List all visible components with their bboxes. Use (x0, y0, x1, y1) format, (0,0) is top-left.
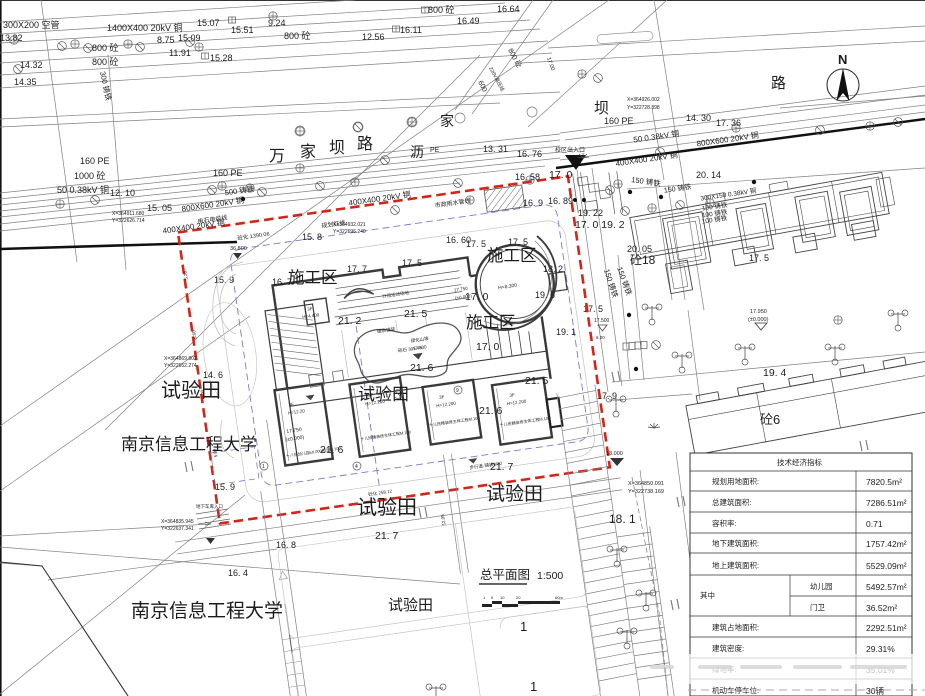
svg-text:17. 5: 17. 5 (402, 258, 422, 268)
svg-text:其中: 其中 (700, 590, 715, 600)
svg-text:15.51: 15.51 (231, 25, 254, 35)
svg-text:8.75: 8.75 (157, 35, 175, 45)
svg-text:家: 家 (440, 113, 454, 129)
svg-text:11.91: 11.91 (169, 48, 191, 58)
svg-text:17. 0: 17. 0 (476, 341, 500, 353)
svg-text:15.28: 15.28 (210, 53, 233, 63)
svg-text:建筑占地面积:: 建筑占地面积: (712, 622, 759, 632)
svg-text:1: 1 (262, 464, 265, 470)
svg-text:砼18: 砼18 (630, 253, 656, 267)
svg-text:1:500: 1:500 (537, 570, 563, 582)
svg-text:总平面图: 总平面图 (480, 568, 530, 582)
svg-text:3F: 3F (439, 394, 445, 400)
svg-text:地上建筑面积:: 地上建筑面积: (712, 560, 759, 570)
svg-text:16.64: 16.64 (497, 4, 520, 14)
svg-text:16.49: 16.49 (457, 16, 480, 26)
svg-text:15. 8: 15. 8 (302, 232, 322, 242)
svg-text:21. 7: 21. 7 (375, 530, 399, 542)
svg-text:路: 路 (357, 135, 373, 153)
svg-text:X=364932.021: X=364932.021 (333, 222, 366, 228)
svg-text:校区出入口: 校区出入口 (555, 146, 585, 154)
svg-text:X=364926.002: X=364926.002 (627, 97, 660, 103)
svg-text:13.82: 13.82 (0, 33, 23, 43)
svg-text:(±0.000): (±0.000) (748, 317, 769, 323)
svg-text:坝: 坝 (329, 139, 345, 157)
svg-text:19. 4: 19. 4 (763, 367, 787, 379)
svg-text:Y=322696.240: Y=322696.240 (333, 229, 366, 235)
svg-text:N: N (838, 52, 847, 67)
svg-text:20. 14: 20. 14 (696, 170, 721, 180)
svg-text:南京信息工程大学: 南京信息工程大学 (131, 600, 283, 622)
svg-text:X=364850.091: X=364850.091 (628, 481, 664, 487)
svg-text:地下建筑面积:: 地下建筑面积: (712, 538, 759, 548)
svg-text:21. 5: 21. 5 (404, 308, 428, 320)
svg-text:建筑密度:: 建筑密度: (712, 643, 744, 653)
svg-text:1: 1 (530, 679, 537, 694)
svg-text:18. 1: 18. 1 (609, 512, 636, 526)
svg-text:2292.51m²: 2292.51m² (866, 623, 907, 633)
svg-text:19. 22: 19. 22 (578, 208, 603, 218)
svg-text:14.35: 14.35 (14, 77, 37, 87)
svg-text:X=364835.945: X=364835.945 (161, 519, 194, 525)
svg-text:16. 8: 16. 8 (276, 540, 296, 550)
svg-text:160 PE: 160 PE (604, 116, 634, 126)
svg-text:1400X400 20kV 铜: 1400X400 20kV 铜 (107, 22, 183, 33)
svg-text:6.00: 6.00 (596, 335, 605, 340)
svg-text:18. 2: 18. 2 (543, 264, 563, 274)
svg-text:800 砼: 800 砼 (428, 4, 455, 15)
svg-text:15.07: 15.07 (197, 18, 220, 28)
svg-text:地下车库入口: 地下车库入口 (196, 503, 223, 510)
svg-text:3F: 3F (307, 306, 313, 312)
svg-text:14.32: 14.32 (20, 60, 43, 70)
svg-text:试验田: 试验田 (486, 483, 543, 505)
svg-text:坝: 坝 (594, 100, 609, 117)
svg-text:36.52m²: 36.52m² (866, 603, 897, 613)
svg-text:规划用地面积:: 规划用地面积: (712, 476, 759, 486)
svg-text:施工区: 施工区 (288, 268, 338, 287)
svg-text:容积率:: 容积率: (712, 518, 737, 528)
svg-text:9: 9 (456, 388, 459, 394)
svg-text:21. 6: 21. 6 (320, 444, 344, 456)
svg-text:1000 砼: 1000 砼 (74, 170, 106, 181)
svg-text:16. 9: 16. 9 (523, 198, 543, 208)
svg-text:17. 5: 17. 5 (749, 253, 769, 263)
svg-text:60m: 60m (555, 595, 563, 600)
svg-text:3F: 3F (288, 402, 294, 408)
svg-text:7820.5m²: 7820.5m² (866, 477, 902, 487)
svg-text:17. 0 19. 2: 17. 0 19. 2 (575, 219, 625, 231)
svg-text:36.800: 36.800 (230, 246, 247, 252)
svg-text:15. 05: 15. 05 (147, 203, 172, 213)
svg-text:800 砼: 800 砼 (92, 56, 119, 67)
svg-text:17.950: 17.950 (750, 309, 767, 315)
svg-text:17. 7: 17. 7 (347, 264, 367, 274)
svg-text:16. 89: 16. 89 (548, 196, 573, 206)
svg-text:14. 30: 14. 30 (686, 113, 711, 123)
svg-text:10: 10 (500, 595, 505, 600)
svg-text:试验田: 试验田 (358, 385, 409, 404)
svg-text:30辆: 30辆 (866, 686, 884, 696)
svg-text:门卫: 门卫 (810, 603, 825, 612)
svg-text:试验田: 试验田 (161, 379, 221, 402)
svg-text:16.11: 16.11 (400, 25, 422, 35)
svg-text:21. 6: 21. 6 (410, 362, 434, 374)
svg-text:13. 31: 13. 31 (483, 144, 508, 154)
svg-text:Y=322728.898: Y=322728.898 (627, 105, 660, 111)
svg-text:17. 0: 17. 0 (465, 291, 489, 303)
svg-text:Y=322626.714: Y=322626.714 (112, 218, 145, 224)
svg-text:12.56: 12.56 (362, 32, 385, 42)
svg-text:施工区: 施工区 (466, 313, 516, 332)
svg-text:0.71: 0.71 (866, 519, 883, 529)
svg-text:7286.51m²: 7286.51m² (866, 498, 907, 508)
svg-text:Y=322652.274: Y=322652.274 (164, 363, 197, 369)
svg-text:17. 0: 17. 0 (549, 169, 573, 181)
svg-text:总建筑面积:: 总建筑面积: (712, 497, 752, 507)
svg-text:17. 5: 17. 5 (508, 237, 528, 247)
svg-text:Y=322738.169: Y=322738.169 (628, 489, 664, 495)
svg-text:17. 5: 17. 5 (466, 239, 486, 249)
svg-text:1: 1 (520, 619, 527, 634)
svg-text:16. 4: 16. 4 (228, 568, 248, 578)
svg-text:160 PE: 160 PE (213, 168, 243, 178)
svg-text:试验田: 试验田 (388, 597, 433, 614)
svg-text:试验田: 试验田 (357, 496, 417, 519)
svg-text:300X200 空管: 300X200 空管 (3, 19, 60, 30)
svg-text:18.000: 18.000 (606, 451, 623, 457)
svg-text:800 砼: 800 砼 (284, 30, 311, 41)
svg-text:50 0.38kV 铜: 50 0.38kV 铜 (57, 184, 109, 195)
svg-text:家: 家 (300, 143, 316, 161)
svg-text:砼6: 砼6 (760, 412, 780, 427)
svg-text:5492.57m²: 5492.57m² (866, 582, 907, 592)
svg-text:1757.42m²: 1757.42m² (866, 539, 907, 549)
svg-text:沥: 沥 (410, 144, 424, 160)
svg-text:技术经济指标: 技术经济指标 (777, 457, 822, 467)
svg-text:PE: PE (430, 147, 440, 154)
svg-text:21. 7: 21. 7 (490, 461, 514, 473)
svg-text:12. 10: 12. 10 (110, 188, 135, 198)
svg-text:20: 20 (516, 595, 521, 600)
svg-text:29.31%: 29.31% (866, 644, 895, 654)
svg-text:Y=322637.341: Y=322637.341 (161, 526, 194, 532)
svg-text:21. 5: 21. 5 (525, 375, 549, 387)
svg-text:14. 6: 14. 6 (203, 370, 223, 380)
svg-text:800 砼: 800 砼 (92, 42, 119, 53)
svg-text:17. 36: 17. 36 (716, 118, 741, 128)
svg-text:3F: 3F (509, 392, 515, 398)
svg-text:17.500: 17.500 (594, 318, 610, 324)
svg-text:X=364911.680: X=364911.680 (112, 211, 145, 217)
svg-text:19. 1: 19. 1 (556, 327, 576, 337)
svg-text:21. 6: 21. 6 (479, 405, 503, 417)
svg-text:施工区: 施工区 (487, 246, 537, 265)
svg-text:万: 万 (269, 148, 285, 165)
svg-text:16. 76: 16. 76 (517, 149, 542, 159)
svg-text:160 PE: 160 PE (80, 156, 110, 166)
svg-text:南京信息工程大学: 南京信息工程大学 (121, 435, 257, 454)
svg-text:X=364869.802: X=364869.802 (164, 356, 197, 362)
svg-text:路: 路 (771, 75, 786, 92)
svg-text:4: 4 (355, 464, 358, 470)
svg-text:幼儿园: 幼儿园 (810, 581, 833, 591)
svg-text:15. 9: 15. 9 (215, 482, 235, 492)
svg-text:19. 6: 19. 6 (535, 290, 555, 300)
svg-text:5529.09m²: 5529.09m² (866, 561, 907, 571)
svg-text:21. 2: 21. 2 (338, 315, 362, 327)
